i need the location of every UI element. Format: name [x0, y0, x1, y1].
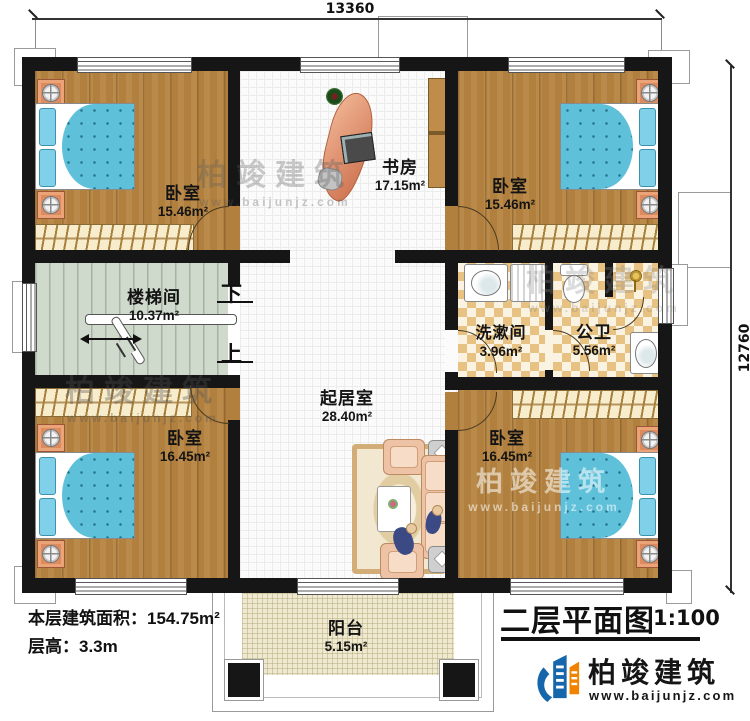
- cushion: [390, 446, 418, 468]
- room-area: 16.45m²: [482, 449, 532, 465]
- dimension-line-right: [730, 66, 732, 593]
- room-label-bathroom: 公卫 5.56m²: [573, 323, 616, 359]
- room-name: 阳台: [328, 619, 364, 639]
- title-underline: [501, 637, 700, 641]
- room-area: 3.96m²: [480, 344, 523, 360]
- stair-direction-line: [85, 338, 137, 340]
- company-name: 柏竣建筑: [588, 651, 720, 691]
- balcony-column: [440, 660, 478, 700]
- plan-title: 二层平面图: [500, 596, 655, 640]
- lamp-icon: [641, 431, 659, 449]
- lamp-icon: [42, 545, 60, 563]
- dimension-value-right: 12760: [737, 298, 750, 398]
- dimension-value-top: 13360: [300, 1, 400, 17]
- balcony-column: [225, 660, 263, 700]
- floor-area-note: 本层建筑面积：154.75m²: [28, 604, 220, 629]
- room-name: 卧室: [492, 177, 528, 197]
- bed-cover: [561, 453, 633, 538]
- window: [77, 57, 192, 73]
- wardrobe: [35, 224, 194, 253]
- window: [22, 283, 37, 352]
- room-label-stairwell: 楼梯间 10.37m²: [127, 288, 181, 324]
- person-head: [406, 523, 417, 534]
- nightstand: [37, 424, 65, 452]
- room-label-washroom: 洗漱间 3.96m²: [475, 325, 526, 360]
- wall-segment: [228, 420, 240, 593]
- door-opening: [445, 330, 458, 372]
- dimension-line-top: [32, 18, 662, 20]
- wall-segment: [228, 57, 240, 206]
- washing-machine: [510, 264, 546, 302]
- pillow: [39, 108, 56, 146]
- nightstand: [37, 540, 65, 568]
- person-head: [432, 505, 443, 516]
- room-name: 卧室: [167, 429, 203, 449]
- double-bed: [35, 452, 135, 539]
- nightstand: [37, 191, 65, 219]
- wall-segment: [545, 263, 553, 330]
- door-opening: [228, 206, 240, 250]
- wall-segment: [658, 57, 672, 593]
- room-label-study: 书房 17.15m²: [375, 158, 425, 194]
- room-name: 书房: [382, 158, 418, 178]
- stair-label-line: [217, 301, 253, 303]
- bed-cover: [62, 104, 134, 189]
- sink-counter: [464, 264, 508, 302]
- wardrobe: [512, 224, 660, 253]
- room-area: 15.46m²: [158, 204, 208, 220]
- wardrobe: [512, 390, 660, 419]
- wall-segment: [445, 250, 672, 263]
- room-name: 楼梯间: [127, 288, 181, 308]
- pillow: [639, 457, 656, 495]
- room-area: 28.40m²: [322, 409, 372, 425]
- wardrobe: [35, 388, 192, 417]
- floor-area-value: 154.75m²: [147, 609, 220, 628]
- double-bed: [35, 103, 135, 190]
- room-label-bedroom-top-right: 卧室 15.46m²: [485, 177, 535, 213]
- sink-basin-icon: [471, 270, 501, 296]
- extension-line: [35, 20, 36, 48]
- wall-segment: [445, 57, 458, 206]
- lamp-icon: [641, 545, 659, 563]
- pillow: [39, 498, 56, 536]
- bed-cover: [561, 104, 633, 189]
- lamp-icon: [42, 84, 60, 102]
- room-label-balcony: 阳台 5.15m²: [325, 619, 368, 655]
- room-area: 17.15m²: [375, 178, 425, 194]
- room-name: 洗漱间: [475, 325, 526, 344]
- pillow: [639, 149, 656, 187]
- wall-segment: [395, 250, 445, 263]
- stair-label-line: [217, 361, 253, 363]
- pillow: [639, 108, 656, 146]
- toilet-icon: [563, 275, 585, 303]
- window: [658, 268, 674, 324]
- double-bed: [560, 103, 660, 190]
- lamp-icon: [42, 429, 60, 447]
- room-area: 16.45m²: [160, 449, 210, 465]
- lamp-icon: [641, 84, 659, 102]
- floor-height-value: 3.3m: [79, 637, 118, 656]
- plant-icon: [326, 88, 343, 105]
- wall-segment: [445, 377, 672, 390]
- door-opening: [545, 330, 553, 370]
- window: [300, 57, 400, 73]
- pillow: [39, 149, 56, 187]
- pillow: [39, 457, 56, 495]
- double-bed: [560, 452, 660, 539]
- shower-head-icon: [630, 270, 642, 282]
- roof-outline: [378, 16, 468, 62]
- floor-plan-canvas: 卧室 15.46m² 书房 17.15m² 卧室 15.46m² 楼梯间 10.…: [0, 0, 750, 721]
- stair-down-label: 下: [221, 278, 242, 308]
- room-area: 15.46m²: [485, 197, 535, 213]
- roof-outline: [678, 192, 732, 268]
- lamp-icon: [42, 196, 60, 214]
- armchair: [383, 439, 425, 475]
- room-name: 起居室: [320, 389, 374, 409]
- wall-segment: [445, 430, 458, 593]
- room-area: 5.15m²: [325, 639, 368, 655]
- room-name: 卧室: [489, 429, 525, 449]
- pillow: [639, 498, 656, 536]
- floor-area-label: 本层建筑面积：: [28, 609, 147, 628]
- room-area: 10.37m²: [129, 308, 179, 324]
- arrow-left-icon: [80, 334, 89, 344]
- room-area: 5.56m²: [573, 343, 616, 359]
- balcony-sliding-door: [297, 578, 399, 595]
- room-label-living-room: 起居室 28.40m²: [320, 389, 374, 425]
- window: [75, 578, 187, 595]
- sink-counter: [630, 332, 660, 374]
- wall-segment: [240, 250, 290, 263]
- door-opening: [445, 392, 458, 430]
- window: [510, 578, 624, 595]
- room-label-bedroom-top-left: 卧室 15.46m²: [158, 184, 208, 220]
- room-name: 卧室: [165, 184, 201, 204]
- sink-basin-icon: [635, 339, 657, 368]
- computer-monitor: [340, 132, 376, 164]
- room-label-bedroom-bottom-left: 卧室 16.45m²: [160, 429, 210, 465]
- company-website: www.baijunjz.com: [589, 688, 736, 703]
- door-opening: [445, 206, 458, 250]
- floor-height-note: 层高：3.3m: [28, 632, 118, 657]
- stair-up-label: 上: [221, 338, 242, 368]
- floor-height-label: 层高：: [28, 637, 79, 656]
- wall-segment: [545, 370, 553, 377]
- arrow-right-icon: [133, 334, 142, 344]
- wall-segment: [445, 263, 458, 330]
- table-flower-icon: [388, 499, 398, 509]
- company-logo-icon: [534, 648, 582, 706]
- shower-hose: [634, 280, 636, 292]
- room-name: 公卫: [576, 323, 612, 343]
- wall-segment: [22, 250, 240, 263]
- extension-line: [661, 20, 662, 50]
- window: [508, 57, 625, 73]
- bed-cover: [62, 453, 134, 538]
- plan-scale: 1:100: [653, 606, 720, 630]
- room-label-bedroom-bottom-right: 卧室 16.45m²: [482, 429, 532, 465]
- door-opening: [228, 388, 240, 420]
- shower-partition-wall: [605, 263, 613, 297]
- lamp-icon: [641, 196, 659, 214]
